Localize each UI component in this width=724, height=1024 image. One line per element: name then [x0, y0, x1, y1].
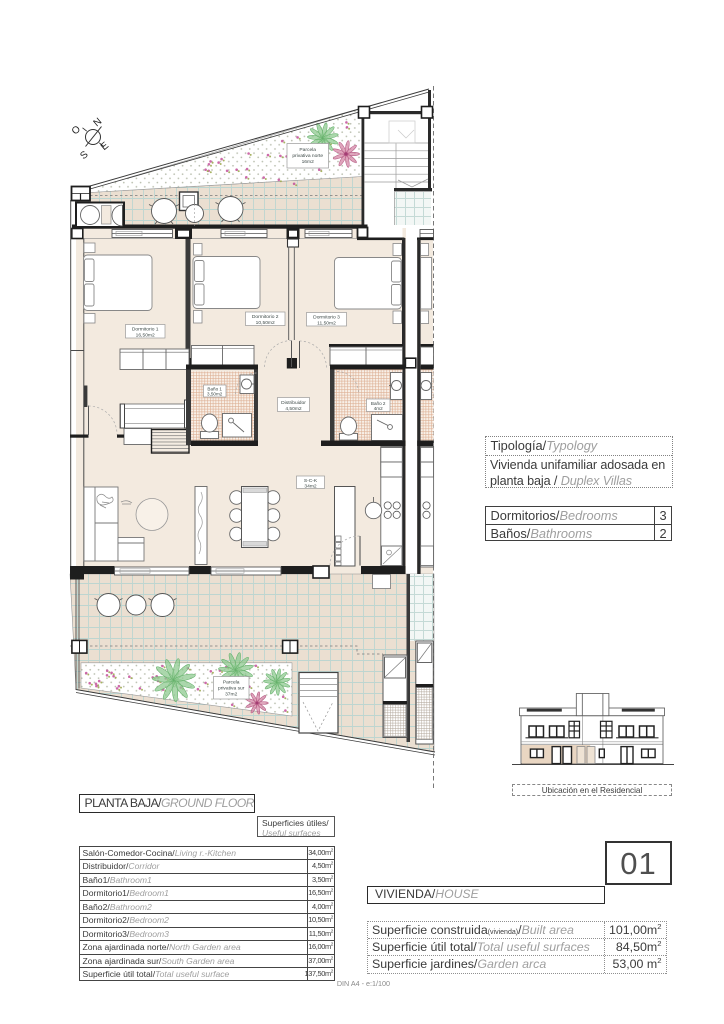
svg-text:34m2: 34m2 — [304, 483, 317, 489]
svg-text:37m2: 37m2 — [225, 692, 238, 698]
svg-text:16,50m2: 16,50m2 — [136, 332, 155, 338]
svg-text:4,50m2: 4,50m2 — [285, 406, 302, 412]
svg-text:N: N — [92, 116, 105, 129]
svg-text:O: O — [70, 124, 83, 138]
svg-text:10,50m2: 10,50m2 — [256, 320, 275, 326]
svg-text:Parcela: Parcela — [223, 680, 240, 686]
svg-text:3,50m2: 3,50m2 — [207, 392, 223, 397]
svg-text:4m2: 4m2 — [374, 406, 383, 411]
svg-text:Dormitorio 3: Dormitorio 3 — [313, 315, 340, 321]
svg-text:16m2: 16m2 — [302, 159, 315, 165]
svg-text:privativa sur: privativa sur — [218, 686, 245, 692]
svg-text:privativa norte: privativa norte — [292, 153, 323, 159]
svg-text:Parcela: Parcela — [299, 147, 316, 153]
svg-text:Distribuidor: Distribuidor — [281, 400, 306, 406]
svg-text:E: E — [99, 140, 111, 153]
svg-text:S-C-K: S-C-K — [304, 478, 318, 484]
svg-text:11,50m2: 11,50m2 — [317, 320, 336, 326]
svg-text:Dormitorio 2: Dormitorio 2 — [252, 314, 279, 320]
svg-text:Dormitorio 1: Dormitorio 1 — [132, 327, 159, 333]
svg-text:S: S — [78, 149, 90, 162]
